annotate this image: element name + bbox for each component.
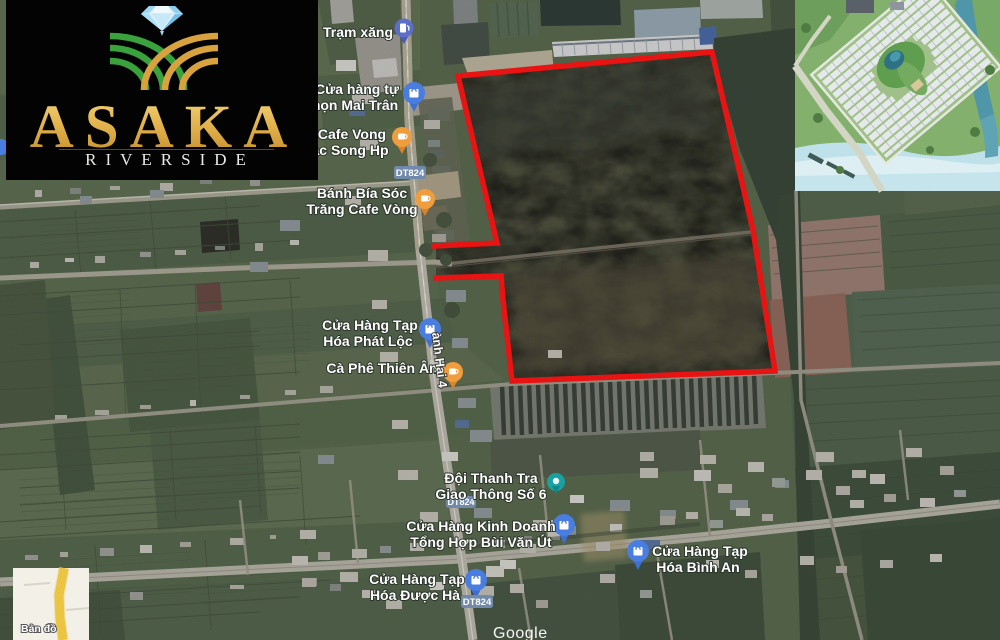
svg-text:Cà Phê Thiên Ân: Cà Phê Thiên Ân xyxy=(326,359,437,376)
svg-text:Cửa hàng tự: Cửa hàng tự xyxy=(315,81,400,97)
svg-text:Cửa Hàng Tạp: Cửa Hàng Tạp xyxy=(322,317,418,333)
svg-text:Bánh Bía Sóc: Bánh Bía Sóc xyxy=(317,185,407,201)
svg-text:DT824: DT824 xyxy=(463,597,492,608)
svg-text:RIVERSIDE: RIVERSIDE xyxy=(85,150,255,169)
svg-text:Tổng Hợp Bùi Văn Út: Tổng Hợp Bùi Văn Út xyxy=(410,533,552,550)
svg-text:Trăng Cafe Vòng: Trăng Cafe Vòng xyxy=(306,201,417,217)
svg-text:Giao Thông Số 6: Giao Thông Số 6 xyxy=(435,486,546,502)
svg-text:Đội Thanh Tra: Đội Thanh Tra xyxy=(444,470,538,486)
svg-text:Trạm xăng: Trạm xăng xyxy=(323,24,393,40)
svg-text:ạc Song Hp: ạc Song Hp xyxy=(311,142,388,158)
svg-text:Cửa Hàng Tạp: Cửa Hàng Tạp xyxy=(369,571,465,587)
svg-text:Hóa Phát Lộc: Hóa Phát Lộc xyxy=(323,333,413,349)
svg-text:Hóa Bình An: Hóa Bình An xyxy=(656,559,739,575)
svg-text:Hóa Được Hà: Hóa Được Hà xyxy=(370,587,460,603)
svg-text:Google: Google xyxy=(493,625,548,640)
svg-text:Cafe Vong: Cafe Vong xyxy=(318,126,386,142)
svg-text:DT824: DT824 xyxy=(396,168,425,179)
svg-text:Cửa Hàng Kinh Doanh: Cửa Hàng Kinh Doanh xyxy=(406,518,555,534)
svg-text:Bản đồ: Bản đồ xyxy=(21,623,57,635)
svg-text:Cửa Hàng Tạp: Cửa Hàng Tạp xyxy=(652,543,748,559)
svg-text:họn Mai Trân: họn Mai Trân xyxy=(312,97,398,113)
